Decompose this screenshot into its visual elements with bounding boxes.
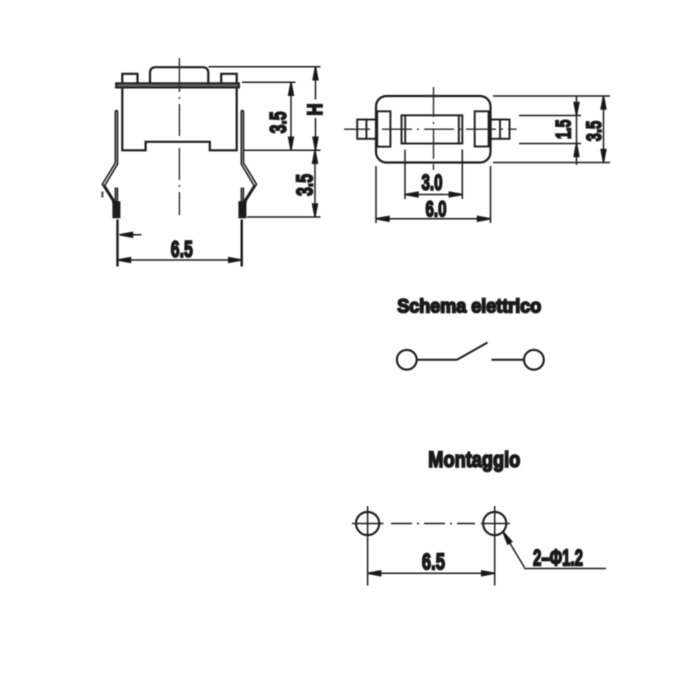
- svg-text:6.5: 6.5: [171, 236, 193, 262]
- svg-text:H: H: [304, 104, 327, 116]
- svg-text:Montaggio: Montaggio: [428, 447, 520, 472]
- svg-text:3.5: 3.5: [583, 121, 606, 142]
- svg-text:3.5: 3.5: [292, 174, 318, 196]
- svg-text:2–Φ1.2: 2–Φ1.2: [533, 545, 583, 571]
- svg-text:6.0: 6.0: [426, 196, 447, 221]
- svg-text:Schema elettrico: Schema elettrico: [397, 296, 541, 318]
- svg-text:1.5: 1.5: [552, 119, 575, 139]
- svg-text:6.5: 6.5: [422, 549, 445, 575]
- svg-text:3.5: 3.5: [265, 111, 291, 133]
- svg-text:3.0: 3.0: [422, 170, 443, 195]
